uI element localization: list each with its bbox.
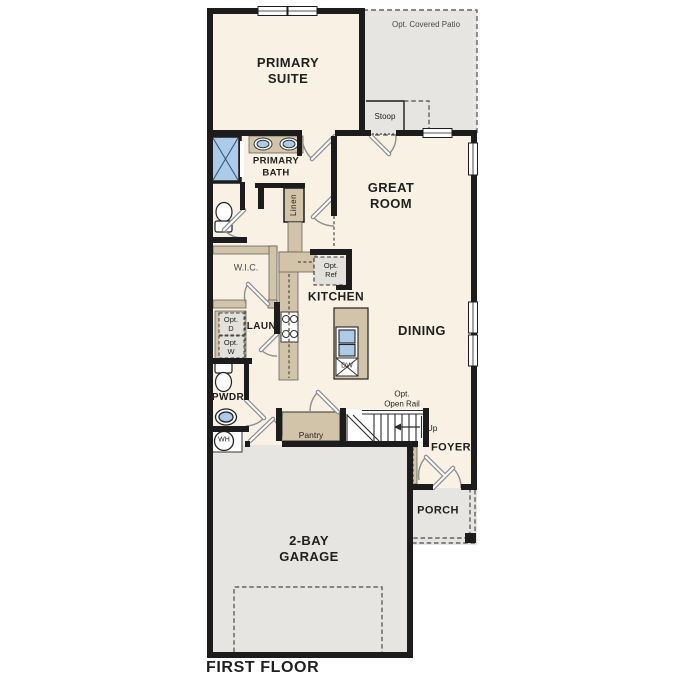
dishwasher-label: DW xyxy=(341,363,353,372)
wall-greatroom-top-b xyxy=(396,130,424,136)
wall-suite-bottom-a xyxy=(207,130,302,136)
greatroom-top-window xyxy=(423,129,452,138)
pantry-label: Pantry xyxy=(299,430,324,440)
suite-window-2 xyxy=(288,7,317,16)
floorplan-drawing xyxy=(0,0,687,687)
laundry-label: LAUN. xyxy=(247,321,280,333)
opt-dryer-label: Opt. D xyxy=(224,315,238,333)
floor-title: FIRST FLOOR xyxy=(206,658,319,678)
stoop-label: Stoop xyxy=(375,112,396,122)
powder-toilet xyxy=(215,363,232,392)
powder-sink xyxy=(216,409,237,425)
wall-optref-top xyxy=(310,249,352,255)
porch-label: PORCH xyxy=(417,504,459,517)
wall-hall-stub xyxy=(258,183,264,209)
dining-label: DINING xyxy=(398,323,446,339)
up-label: Up xyxy=(427,423,438,433)
opt-washer-label: Opt. W xyxy=(224,338,238,356)
shower xyxy=(211,136,244,182)
linen-wall-band xyxy=(288,222,302,253)
wall-left xyxy=(207,8,213,658)
wall-suite-bottom-b xyxy=(335,130,371,136)
water-heater-label: WH xyxy=(218,437,230,446)
dining-window-2 xyxy=(469,335,478,366)
wall-laundry-bottom xyxy=(207,358,252,364)
linen-label: Linen xyxy=(289,194,299,216)
wic-wall-bottom-left xyxy=(213,300,246,308)
porch-post xyxy=(465,533,476,543)
wall-garage-top-b xyxy=(282,441,418,447)
wall-greatroom-left xyxy=(331,136,337,216)
wic-wall-right xyxy=(269,246,277,308)
kitchen-label: KITCHEN xyxy=(308,290,364,305)
great-room-label: GREAT ROOM xyxy=(368,180,415,212)
wall-garage-right xyxy=(407,441,413,658)
opt-covered-patio-label: Opt. Covered Patio xyxy=(392,20,460,30)
foyer-label: FOYER xyxy=(431,441,471,454)
primary-bath-label: PRIMARY BATH xyxy=(253,155,299,178)
suite-window-1 xyxy=(258,7,287,16)
greatroom-right-window xyxy=(469,143,478,175)
wall-stairs-left xyxy=(340,408,346,441)
powder-label: PWDR xyxy=(212,392,244,404)
opt-ref-label: Opt. Ref xyxy=(324,261,338,279)
wall-suite-patio xyxy=(359,8,365,136)
wall-toiletroom-right xyxy=(240,182,245,210)
range-stove xyxy=(281,312,298,342)
wall-suite-door-jamb xyxy=(297,130,302,156)
garage-label: 2-BAY GARAGE xyxy=(279,533,338,565)
dining-window-1 xyxy=(469,302,478,333)
primary-suite-label: PRIMARY SUITE xyxy=(257,55,319,87)
wic-label: W.I.C. xyxy=(234,263,259,274)
wall-foyer-bottom-right xyxy=(461,484,471,490)
opt-open-rail-label: Opt. Open Rail xyxy=(384,389,420,409)
wall-powder-bottom xyxy=(207,426,249,432)
wall-toiletroom-bottom xyxy=(207,237,247,243)
island-sink xyxy=(336,327,358,358)
wall-pantry-left xyxy=(276,408,282,441)
wic-wall-top xyxy=(213,246,277,254)
wall-optref-right xyxy=(346,249,352,290)
floorplan-canvas: PRIMARY SUITE Opt. Covered Patio Stoop P… xyxy=(0,0,687,687)
wall-powder-right xyxy=(244,364,249,400)
wall-garage-top-a xyxy=(245,441,250,447)
